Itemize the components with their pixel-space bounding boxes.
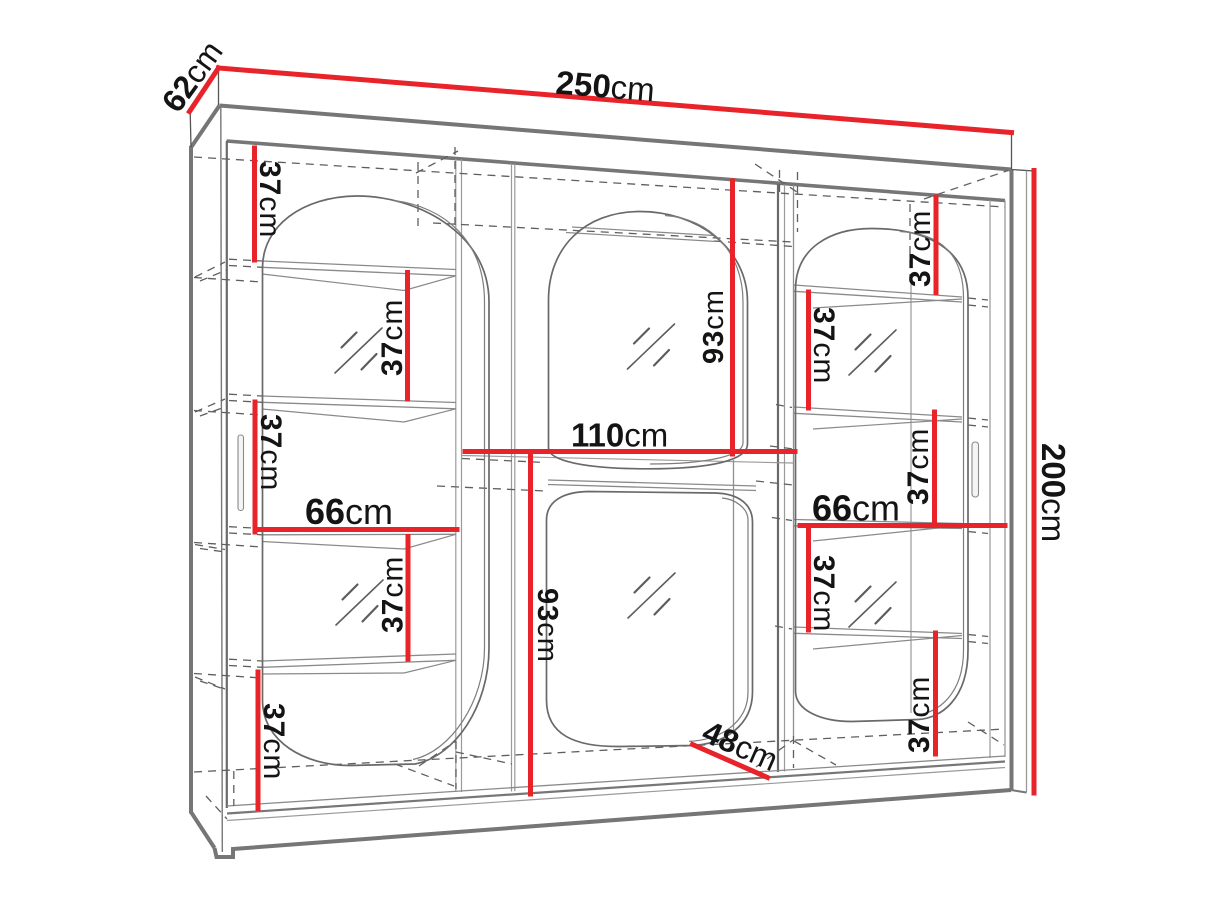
svg-text:93cm: 93cm [531, 588, 563, 663]
svg-text:37cm: 37cm [376, 299, 409, 376]
svg-text:37cm: 37cm [904, 210, 937, 287]
svg-text:37cm: 37cm [257, 703, 290, 780]
svg-text:66cm: 66cm [812, 488, 900, 529]
svg-text:37cm: 37cm [902, 428, 935, 505]
svg-text:93cm: 93cm [698, 289, 730, 364]
svg-text:66cm: 66cm [305, 491, 393, 532]
svg-text:37cm: 37cm [903, 676, 936, 753]
svg-text:37cm: 37cm [254, 414, 287, 491]
svg-text:37cm: 37cm [377, 556, 410, 633]
svg-text:110cm: 110cm [571, 417, 668, 454]
svg-text:37cm: 37cm [807, 555, 840, 632]
svg-text:200cm: 200cm [1035, 443, 1072, 542]
svg-text:37cm: 37cm [807, 307, 840, 384]
svg-text:37cm: 37cm [253, 161, 286, 238]
